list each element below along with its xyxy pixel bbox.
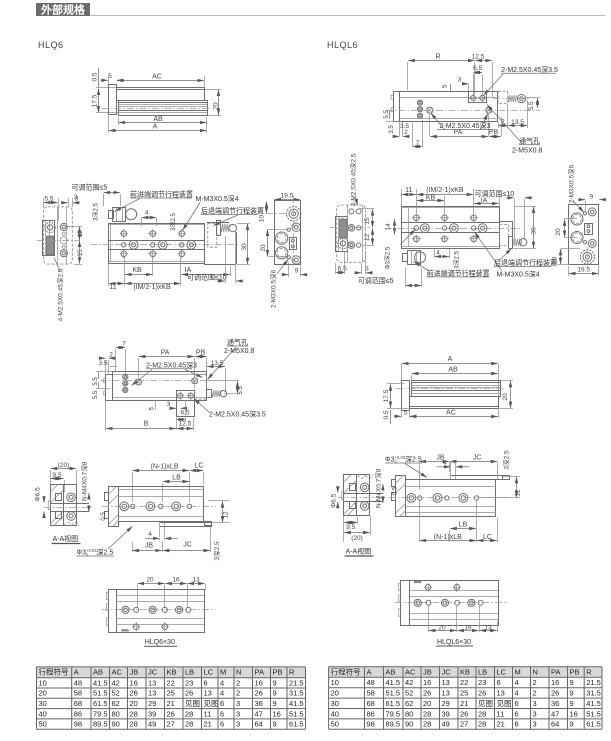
svg-text:可调范围≤5: 可调范围≤5 (72, 182, 108, 191)
svg-text:12.5: 12.5 (179, 421, 192, 428)
svg-text:2: 2 (533, 689, 537, 698)
svg-text:KB: KB (460, 667, 470, 676)
svg-text:4-M2.5X0.45深2.5: 4-M2.5X0.45深2.5 (56, 268, 65, 321)
svg-text:A: A (367, 667, 372, 676)
svg-text:10: 10 (259, 215, 266, 223)
svg-text:16: 16 (570, 709, 578, 718)
svg-text:12.5: 12.5 (472, 54, 485, 61)
svg-text:28: 28 (423, 720, 431, 729)
svg-text:LC: LC (195, 462, 204, 469)
svg-text:28: 28 (185, 709, 193, 718)
svg-text:12: 12 (515, 489, 522, 497)
svg-text:3: 3 (167, 401, 171, 408)
svg-text:0.5: 0.5 (92, 72, 99, 81)
svg-text:4: 4 (220, 689, 224, 698)
svg-text:LB: LB (185, 668, 194, 677)
svg-text:HLQL6: HLQL6 (327, 40, 358, 50)
svg-text:5.5: 5.5 (93, 390, 99, 399)
svg-text:10: 10 (551, 257, 558, 265)
svg-text:AB: AB (386, 667, 396, 676)
svg-text:3: 3 (458, 76, 462, 83)
svg-text:4: 4 (515, 689, 519, 698)
svg-text:19.5: 19.5 (281, 192, 294, 199)
svg-text:3: 3 (533, 709, 537, 718)
svg-text:Φ6.5: Φ6.5 (35, 487, 42, 502)
svg-text:6: 6 (220, 720, 224, 729)
svg-text:21: 21 (497, 720, 505, 729)
svg-text:HLQL6×30: HLQL6×30 (437, 639, 471, 646)
svg-text:(20): (20) (58, 462, 70, 469)
svg-text:4: 4 (145, 210, 149, 217)
svg-text:JC: JC (183, 542, 192, 549)
svg-text:LC: LC (204, 668, 214, 677)
svg-text:21.5: 21.5 (586, 678, 601, 687)
svg-text:Φ3深2.5: Φ3深2.5 (383, 246, 391, 269)
svg-text:52: 52 (405, 689, 413, 698)
svg-text:R: R (586, 667, 592, 676)
svg-text:B: B (144, 421, 149, 428)
svg-text:(N-1)xLB: (N-1)xLB (434, 534, 462, 541)
svg-text:9: 9 (273, 720, 277, 729)
svg-text:19.5: 19.5 (577, 266, 590, 273)
svg-text:49: 49 (442, 720, 450, 729)
svg-text:86: 86 (367, 709, 375, 718)
svg-text:16: 16 (551, 678, 559, 687)
svg-text:20: 20 (502, 393, 509, 401)
svg-text:40: 40 (39, 709, 47, 718)
svg-text:JB: JB (130, 668, 139, 677)
svg-text:PA: PA (161, 349, 170, 356)
svg-text:A: A (153, 124, 158, 131)
svg-text:80: 80 (405, 709, 413, 718)
svg-text:17.5: 17.5 (383, 389, 390, 402)
svg-text:5.5: 5.5 (529, 101, 535, 110)
svg-text:26: 26 (460, 709, 468, 718)
svg-text:14: 14 (385, 223, 392, 231)
svg-text:39: 39 (148, 709, 156, 718)
svg-text:40: 40 (331, 709, 339, 718)
svg-text:LC: LC (497, 667, 507, 676)
svg-text:80: 80 (112, 709, 120, 718)
svg-text:30: 30 (241, 243, 248, 251)
svg-text:2-M5X0.8: 2-M5X0.8 (224, 348, 254, 355)
svg-text:3.5: 3.5 (400, 123, 409, 130)
svg-text:90: 90 (405, 720, 413, 729)
svg-text:41.5: 41.5 (93, 678, 108, 687)
svg-text:47: 47 (255, 709, 263, 718)
svg-text:21: 21 (167, 699, 175, 708)
svg-text:26: 26 (255, 689, 263, 698)
svg-text:64: 64 (551, 720, 559, 729)
svg-text:26: 26 (478, 689, 486, 698)
svg-text:PA: PA (255, 668, 264, 677)
svg-text:IA: IA (185, 267, 192, 274)
svg-text:22: 22 (167, 678, 175, 687)
svg-text:AC: AC (446, 410, 456, 417)
svg-text:58: 58 (367, 689, 375, 698)
svg-text:90: 90 (112, 720, 120, 729)
svg-text:6.5: 6.5 (473, 65, 482, 72)
svg-text:N-M4X0.7深8: N-M4X0.7深8 (374, 468, 383, 508)
svg-text:16: 16 (172, 577, 180, 584)
svg-text:见图: 见图 (204, 699, 219, 708)
svg-text:9: 9 (570, 689, 574, 698)
svg-text:50: 50 (331, 720, 339, 729)
svg-text:28: 28 (130, 720, 138, 729)
svg-text:5.5: 5.5 (93, 377, 99, 386)
svg-text:12: 12 (223, 511, 230, 519)
svg-text:见图: 见图 (497, 699, 512, 708)
svg-text:JC: JC (442, 667, 452, 676)
svg-text:41.5: 41.5 (586, 699, 601, 708)
svg-text:20: 20 (423, 699, 431, 708)
svg-text:31.5: 31.5 (289, 689, 304, 698)
svg-text:AB: AB (93, 668, 103, 677)
svg-text:4: 4 (148, 531, 152, 538)
svg-text:25: 25 (167, 689, 175, 698)
svg-text:R: R (289, 668, 295, 677)
svg-text:30: 30 (331, 699, 339, 708)
svg-text:6: 6 (497, 678, 501, 687)
svg-text:9: 9 (273, 689, 277, 698)
svg-text:61.5: 61.5 (289, 720, 304, 729)
svg-text:20: 20 (130, 699, 138, 708)
svg-text:2: 2 (533, 678, 537, 687)
svg-text:61.5: 61.5 (93, 699, 108, 708)
svg-text:(IM/2-1)xKB: (IM/2-1)xKB (426, 187, 464, 194)
svg-text:12: 12 (364, 234, 371, 242)
svg-text:4: 4 (436, 249, 440, 256)
svg-text:51.5: 51.5 (586, 709, 601, 718)
svg-text:13: 13 (497, 689, 505, 698)
svg-text:51.5: 51.5 (93, 689, 108, 698)
svg-text:22: 22 (460, 678, 468, 687)
svg-text:A: A (448, 356, 453, 363)
svg-text:PA: PA (454, 129, 463, 136)
svg-text:98: 98 (367, 720, 375, 729)
svg-text:A-A视图: A-A视图 (346, 547, 372, 556)
svg-text:2-M2.5X0.45深3: 2-M2.5X0.45深3 (440, 121, 491, 130)
svg-text:3: 3 (74, 194, 78, 201)
svg-text:21: 21 (460, 699, 468, 708)
svg-text:36: 36 (551, 699, 559, 708)
svg-text:前进端调节行程装置: 前进端调节行程装置 (130, 190, 193, 199)
svg-text:11: 11 (204, 709, 212, 718)
svg-text:47: 47 (551, 709, 559, 718)
svg-text:M-M3X0.5深4: M-M3X0.5深4 (497, 270, 540, 279)
svg-text:30: 30 (531, 227, 538, 235)
svg-text:62: 62 (405, 699, 413, 708)
svg-text:41.5: 41.5 (289, 699, 304, 708)
svg-text:28: 28 (423, 709, 431, 718)
svg-text:M: M (515, 667, 521, 676)
svg-text:13: 13 (442, 678, 450, 687)
svg-text:61.5: 61.5 (386, 699, 401, 708)
svg-text:M: M (220, 668, 226, 677)
svg-text:25: 25 (460, 689, 468, 698)
svg-text:LB: LB (172, 474, 181, 481)
svg-text:30: 30 (39, 699, 47, 708)
svg-text:13: 13 (148, 689, 156, 698)
svg-text:16: 16 (130, 678, 138, 687)
svg-text:(IM/2-1)xKB: (IM/2-1)xKB (133, 284, 171, 291)
svg-text:JB: JB (145, 543, 154, 550)
svg-text:见图: 见图 (185, 699, 200, 708)
svg-text:外部规格: 外部规格 (40, 3, 86, 17)
svg-text:6: 6 (515, 709, 519, 718)
svg-text:0.5: 0.5 (101, 512, 107, 521)
svg-text:20: 20 (260, 244, 267, 252)
svg-text:50: 50 (39, 720, 47, 729)
svg-text:LC: LC (483, 534, 492, 541)
svg-text:9.5: 9.5 (346, 524, 355, 531)
svg-text:PA: PA (551, 667, 560, 676)
svg-text:15: 15 (364, 217, 371, 225)
svg-text:61.5: 61.5 (586, 720, 601, 729)
svg-text:41.5: 41.5 (386, 678, 401, 687)
svg-text:(N-1)xLB: (N-1)xLB (150, 463, 178, 470)
svg-text:20: 20 (39, 689, 47, 698)
svg-text:68: 68 (74, 699, 82, 708)
svg-text:9: 9 (273, 678, 277, 687)
svg-text:7: 7 (416, 140, 420, 147)
svg-text:3深2.5: 3深2.5 (92, 203, 100, 221)
svg-text:23: 23 (185, 678, 193, 687)
svg-text:2-M2.5X0.45深3.5: 2-M2.5X0.45深3.5 (501, 65, 558, 74)
svg-text:6: 6 (220, 709, 224, 718)
svg-text:KB: KB (132, 267, 142, 274)
svg-text:2-M5X0.8: 2-M5X0.8 (512, 148, 542, 155)
svg-text:后退端调节行程装置: 后退端调节行程装置 (201, 206, 264, 215)
svg-text:51.5: 51.5 (386, 689, 401, 698)
svg-text:JC: JC (148, 668, 158, 677)
svg-text:LB: LB (459, 522, 468, 529)
svg-text:2-M3X0.5深6: 2-M3X0.5深6 (567, 164, 576, 203)
svg-text:2-M3X0.5深6: 2-M3X0.5深6 (269, 269, 278, 308)
svg-text:5.5: 5.5 (384, 110, 390, 119)
svg-text:6: 6 (515, 699, 519, 708)
svg-text:48: 48 (74, 678, 82, 687)
svg-text:Φ6.5: Φ6.5 (330, 493, 337, 508)
svg-text:4: 4 (220, 678, 224, 687)
svg-text:39: 39 (442, 709, 450, 718)
svg-text:(20): (20) (351, 535, 363, 542)
svg-text:A: A (74, 668, 79, 677)
svg-text:行程符号: 行程符号 (331, 666, 361, 676)
svg-text:N-M4X0.7深8: N-M4X0.7深8 (80, 461, 89, 501)
svg-text:AC: AC (152, 74, 162, 81)
svg-text:3: 3 (236, 720, 240, 729)
svg-text:21.5: 21.5 (289, 678, 304, 687)
svg-text:79.5: 79.5 (93, 709, 108, 718)
svg-text:6: 6 (515, 720, 519, 729)
svg-text:42: 42 (405, 678, 413, 687)
svg-text:JC: JC (473, 454, 482, 461)
svg-text:PB: PB (489, 129, 499, 136)
svg-text:6: 6 (204, 678, 208, 687)
svg-text:9: 9 (589, 193, 593, 200)
svg-text:JB: JB (423, 667, 432, 676)
svg-text:AB: AB (448, 367, 458, 374)
svg-text:98: 98 (74, 720, 82, 729)
svg-text:9: 9 (295, 267, 299, 274)
svg-text:PB: PB (570, 667, 580, 676)
svg-text:后退端调节行程装置: 后退端调节行程装置 (494, 258, 557, 267)
svg-text:11: 11 (109, 284, 116, 291)
svg-text:27: 27 (167, 720, 175, 729)
svg-text:11: 11 (497, 709, 505, 718)
svg-text:21: 21 (204, 720, 212, 729)
svg-text:13.5: 13.5 (511, 119, 524, 126)
svg-text:PB: PB (273, 668, 283, 677)
svg-text:51.5: 51.5 (289, 709, 304, 718)
svg-text:行程符号: 行程符号 (39, 667, 69, 677)
svg-text:5: 5 (404, 410, 408, 417)
svg-text:HLQ6×30: HLQ6×30 (145, 639, 175, 646)
svg-text:AB: AB (153, 116, 163, 123)
svg-text:PB: PB (196, 349, 206, 356)
svg-text:2: 2 (404, 129, 408, 136)
svg-text:13: 13 (442, 689, 450, 698)
svg-text:23: 23 (478, 678, 486, 687)
svg-text:20: 20 (146, 577, 154, 584)
svg-text:Φ3: Φ3 (77, 550, 87, 557)
svg-text:10: 10 (331, 678, 339, 687)
svg-text:6.5: 6.5 (338, 266, 347, 273)
svg-text:3: 3 (236, 709, 240, 718)
svg-text:42: 42 (112, 678, 120, 687)
svg-text:28: 28 (130, 709, 138, 718)
svg-text:2-M2.5X0.45深3: 2-M2.5X0.45深3 (146, 360, 197, 369)
svg-text:Φ3: Φ3 (385, 457, 395, 464)
svg-text:见图: 见图 (478, 699, 493, 708)
svg-text:17.5: 17.5 (92, 94, 99, 107)
svg-text:68: 68 (367, 699, 375, 708)
svg-text:36: 36 (255, 699, 263, 708)
svg-text:6: 6 (220, 699, 224, 708)
svg-text:N: N (236, 668, 241, 677)
svg-text:N: N (533, 667, 538, 676)
svg-text:28: 28 (185, 720, 193, 729)
svg-text:3深2.5: 3深2.5 (453, 251, 461, 269)
svg-text:3深2.5: 3深2.5 (212, 541, 221, 561)
svg-text:31.5: 31.5 (586, 689, 601, 698)
svg-text:26: 26 (185, 689, 193, 698)
svg-text:深2.5: 深2.5 (97, 548, 114, 557)
svg-text:4: 4 (443, 460, 447, 467)
svg-text:通气孔: 通气孔 (227, 338, 248, 347)
svg-text:28: 28 (478, 709, 486, 718)
svg-text:LB: LB (478, 667, 487, 676)
svg-text:52: 52 (112, 689, 120, 698)
svg-text:0.5: 0.5 (393, 486, 399, 495)
svg-text:48: 48 (367, 678, 375, 687)
svg-text:A-A视图: A-A视图 (53, 534, 79, 543)
svg-text:27: 27 (460, 720, 468, 729)
svg-text:2: 2 (109, 351, 113, 358)
svg-text:9: 9 (570, 699, 574, 708)
svg-text:M-M3X0.5深4: M-M3X0.5深4 (196, 194, 239, 203)
svg-text:26: 26 (130, 689, 138, 698)
svg-text:20: 20 (555, 228, 562, 236)
svg-text:3: 3 (236, 699, 240, 708)
svg-text:15: 15 (77, 249, 84, 257)
svg-text:13: 13 (204, 689, 212, 698)
svg-text:7: 7 (122, 341, 126, 348)
svg-text:10: 10 (39, 678, 47, 687)
svg-text:AC: AC (112, 668, 123, 677)
svg-text:HLQ6: HLQ6 (38, 40, 64, 50)
svg-text:3: 3 (533, 720, 537, 729)
svg-text:9: 9 (570, 720, 574, 729)
svg-text:58: 58 (74, 689, 82, 698)
svg-text:可调范围≤10: 可调范围≤10 (187, 272, 227, 281)
svg-text:9: 9 (570, 678, 574, 687)
svg-text:16: 16 (273, 709, 281, 718)
svg-text:20: 20 (331, 689, 339, 698)
svg-text:12: 12 (77, 230, 84, 238)
svg-text:79.5: 79.5 (386, 709, 401, 718)
svg-text:49: 49 (148, 720, 156, 729)
svg-text:3深2.5: 3深2.5 (169, 213, 177, 231)
svg-text:89.5: 89.5 (93, 720, 108, 729)
svg-text:3.5: 3.5 (98, 360, 107, 367)
svg-text:26: 26 (423, 689, 431, 698)
svg-text:AC: AC (405, 667, 416, 676)
svg-text:13: 13 (192, 577, 200, 584)
svg-text:通气孔: 通气孔 (519, 136, 540, 145)
svg-text:4: 4 (515, 678, 519, 687)
svg-text:可调范围≤5: 可调范围≤5 (358, 276, 394, 285)
svg-text:26: 26 (551, 689, 559, 698)
svg-text:64: 64 (255, 720, 263, 729)
svg-text:16: 16 (423, 678, 431, 687)
svg-text:13: 13 (148, 678, 156, 687)
svg-text:3: 3 (533, 699, 537, 708)
svg-text:89.5: 89.5 (386, 720, 401, 729)
svg-text:2: 2 (236, 689, 240, 698)
svg-text:R: R (435, 54, 440, 61)
svg-text:26: 26 (167, 709, 175, 718)
svg-text:2-M2.5X0.45深3.5: 2-M2.5X0.45深3.5 (209, 410, 266, 419)
svg-text:16: 16 (255, 678, 263, 687)
svg-text:3深2.5: 3深2.5 (502, 450, 511, 470)
svg-text:2: 2 (236, 678, 240, 687)
svg-text:86: 86 (74, 709, 82, 718)
svg-text:3.5: 3.5 (389, 125, 395, 134)
svg-text:62: 62 (112, 699, 120, 708)
svg-text:29: 29 (442, 699, 450, 708)
svg-text:9.5: 9.5 (52, 472, 61, 479)
svg-text:29: 29 (148, 699, 156, 708)
svg-text:11: 11 (405, 187, 412, 194)
svg-text:0.5: 0.5 (383, 410, 390, 419)
svg-text:5.5: 5.5 (44, 196, 53, 203)
svg-text:28: 28 (478, 720, 486, 729)
svg-text:9: 9 (273, 699, 277, 708)
svg-text:KB: KB (167, 668, 177, 677)
